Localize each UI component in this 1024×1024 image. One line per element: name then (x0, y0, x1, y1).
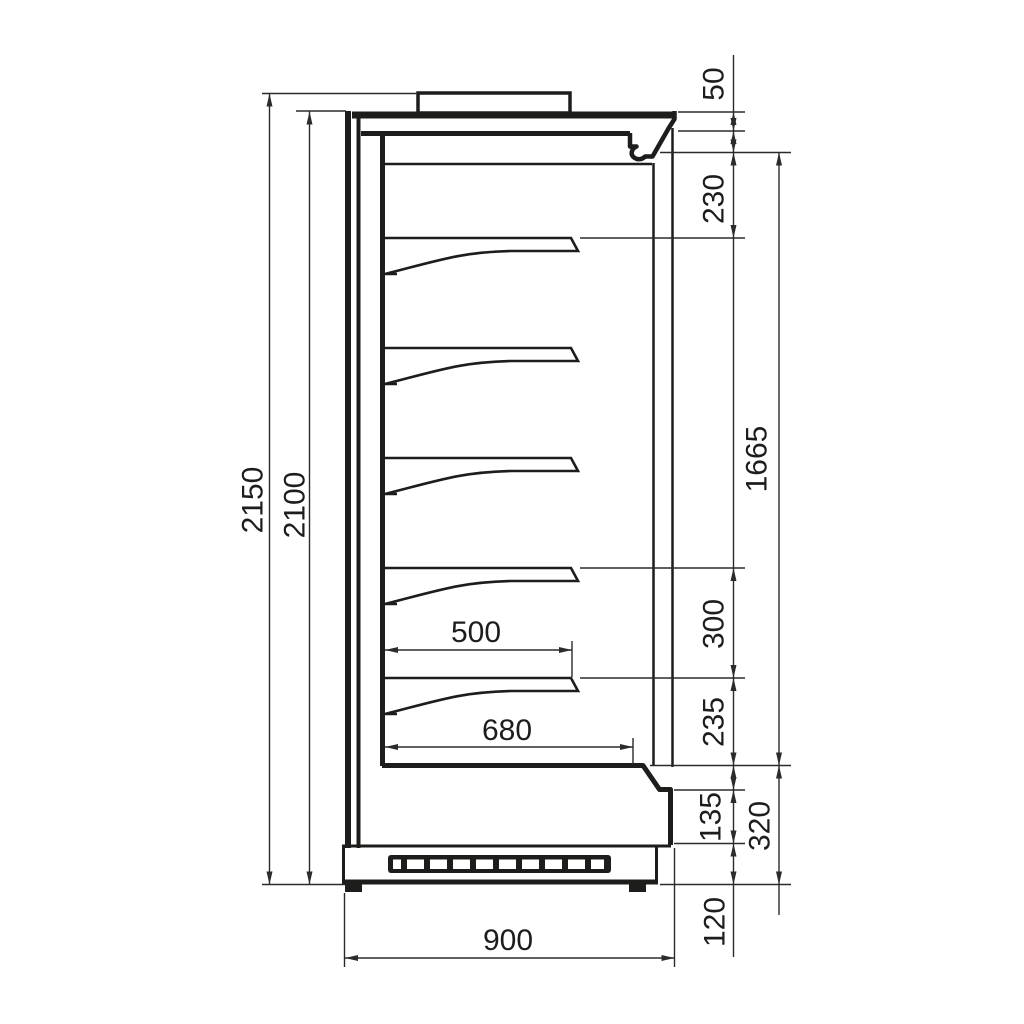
dim-label-base-section-height: 320 (744, 801, 777, 851)
deck-and-lower-front (382, 766, 671, 846)
dim-label-plinth-height: 120 (699, 897, 732, 947)
dim-label-canopy-thickness: 50 (698, 67, 731, 100)
shelf (384, 568, 578, 604)
top-cap (418, 93, 570, 113)
dim-label-shelf-spacing: 300 (698, 599, 731, 649)
dim-label-deck-depth: 680 (482, 714, 532, 747)
cabinet-section-drawing: 2150 2100 50 230 1665 300 235 135 320 12… (0, 0, 1024, 1024)
dim-label-body-height: 2100 (279, 472, 312, 539)
dim-label-display-opening-height: 1665 (741, 426, 774, 493)
dim-label-shelf-depth: 500 (451, 616, 501, 649)
base-grille (388, 855, 611, 873)
dim-label-bottom-shelf-to-deck: 235 (698, 697, 731, 747)
foot-right (629, 884, 646, 892)
dim-label-front-panel-height: 135 (695, 792, 728, 842)
dim-label-overall-height: 2150 (237, 467, 270, 534)
dim-label-top-clearance: 230 (698, 174, 731, 224)
foot-left (345, 884, 362, 892)
shelf (384, 678, 578, 714)
dimension-labels: 2150 2100 50 230 1665 300 235 135 320 12… (237, 67, 777, 957)
shelf (384, 348, 578, 384)
dim-label-overall-depth: 900 (483, 924, 533, 957)
shelf (384, 458, 578, 494)
shelf (384, 238, 578, 274)
